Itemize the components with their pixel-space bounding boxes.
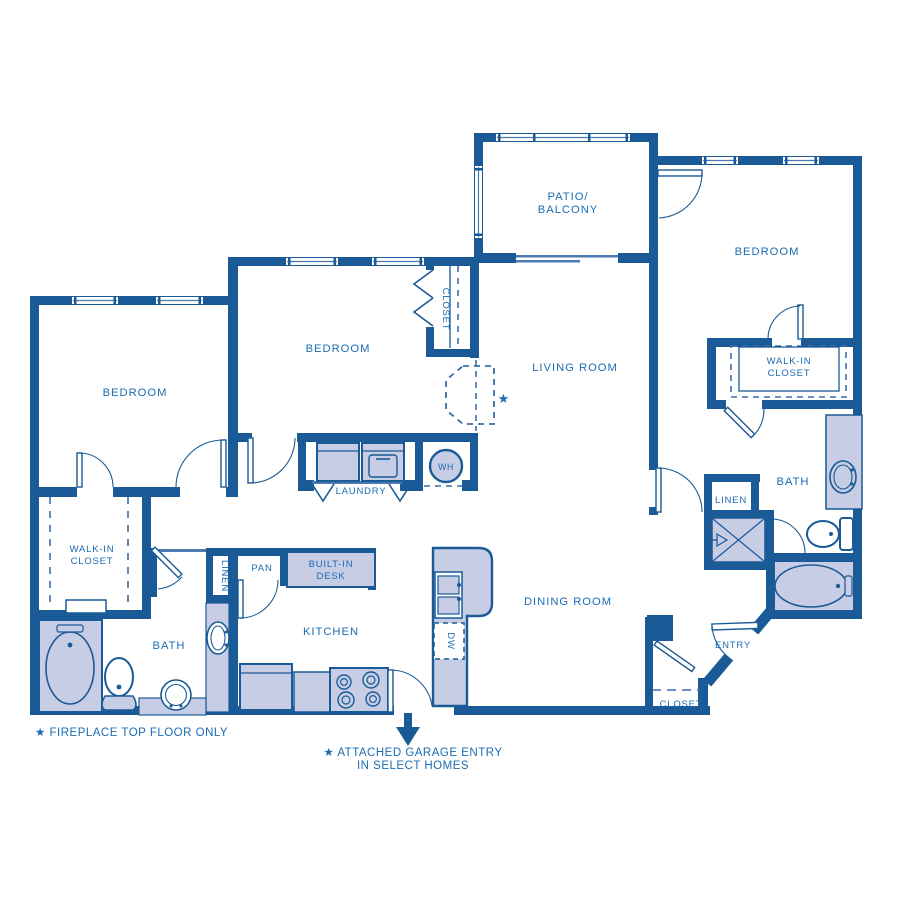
note-fireplace: ★ FIREPLACE TOP FLOOR ONLY (35, 727, 228, 739)
door-shower (771, 519, 805, 553)
fireplace-outline (446, 366, 494, 424)
bathtub-right (775, 562, 853, 610)
window (372, 258, 424, 265)
label-dishwasher: DW (445, 632, 456, 649)
dryer (362, 443, 404, 481)
door-entry-closet (654, 641, 695, 671)
label-linen-right: LINEN (715, 495, 747, 506)
label-bedroom-middle: BEDROOM (306, 343, 371, 355)
bifold-laundry-left (312, 484, 334, 501)
label-patio-line2: BALCONY (538, 204, 598, 216)
shower (711, 518, 765, 562)
label-desk-line1: BUILT-IN (309, 559, 354, 570)
bathtub-left (39, 620, 102, 712)
label-linen-left: LINEN (219, 560, 230, 592)
note-garage-line2: IN SELECT HOMES (357, 760, 469, 772)
window (156, 297, 203, 304)
oval-sink-left-bath (207, 622, 229, 654)
washer (317, 443, 359, 481)
window (702, 157, 738, 164)
garage-arrow-icon (396, 713, 420, 746)
door-bedroom-left (176, 440, 226, 487)
floor-plan-svg: PATIO/ BALCONY BEDROOM BEDROOM BEDROOM L… (0, 0, 900, 900)
label-walkin-right-line2: CLOSET (768, 368, 811, 379)
label-patio-line1: PATIO/ (547, 191, 588, 203)
label-dining-room: DINING ROOM (524, 596, 612, 608)
label-bath-right: BATH (776, 476, 809, 488)
fireplace-star-marker: ★ (498, 391, 511, 406)
kitchen-counter (294, 672, 330, 712)
label-closet-middle: CLOSET (440, 288, 451, 331)
label-entry: ENTRY (715, 640, 751, 651)
label-closet-entry: CLOSET (660, 699, 703, 710)
label-walkin-left-line2: CLOSET (71, 556, 114, 567)
label-pantry: PAN (251, 563, 272, 574)
entry-column (647, 615, 673, 641)
door-bath-right (724, 407, 764, 437)
toilet-left (102, 658, 136, 710)
island-sink (435, 572, 462, 618)
label-kitchen: KITCHEN (303, 626, 359, 638)
stove (330, 668, 388, 712)
bath-counter-right-strip (206, 603, 229, 712)
label-bath-left: BATH (152, 640, 185, 652)
label-walkin-left-line1: WALK-IN (70, 544, 115, 555)
window (72, 297, 118, 304)
label-bedroom-right: BEDROOM (735, 246, 800, 258)
door-bedroom-middle (248, 438, 295, 483)
door-patio (658, 170, 702, 218)
window (286, 258, 338, 265)
refrigerator (240, 664, 292, 710)
window (496, 134, 630, 141)
round-sink-left-bath (161, 680, 191, 710)
door-walkin-right (768, 305, 803, 339)
door-garage (388, 670, 432, 712)
floor-plan-page: PATIO/ BALCONY BEDROOM BEDROOM BEDROOM L… (0, 0, 900, 900)
door-pantry (238, 580, 278, 618)
vanity-sink-right (826, 415, 862, 509)
label-bedroom-left: BEDROOM (103, 387, 168, 399)
patio-slider-line2 (516, 260, 580, 263)
windows (72, 134, 819, 304)
hall-edge-line (157, 549, 206, 552)
patio-slider-line (516, 255, 618, 258)
label-living-room: LIVING ROOM (532, 362, 618, 374)
window (475, 166, 482, 238)
note-garage-line1: ★ ATTACHED GARAGE ENTRY (323, 747, 502, 759)
bifold-closet-middle (414, 270, 433, 326)
window (783, 157, 819, 164)
label-water-heater: WH (438, 462, 454, 472)
toilet-right (807, 518, 853, 550)
door-bedroom-right (656, 468, 702, 512)
label-walkin-right-line1: WALK-IN (767, 356, 812, 367)
door-walkin-left (77, 453, 113, 487)
label-laundry: LAUNDRY (336, 486, 387, 497)
label-desk-line2: DESK (316, 571, 345, 582)
closet-shelf-notch (66, 600, 106, 613)
